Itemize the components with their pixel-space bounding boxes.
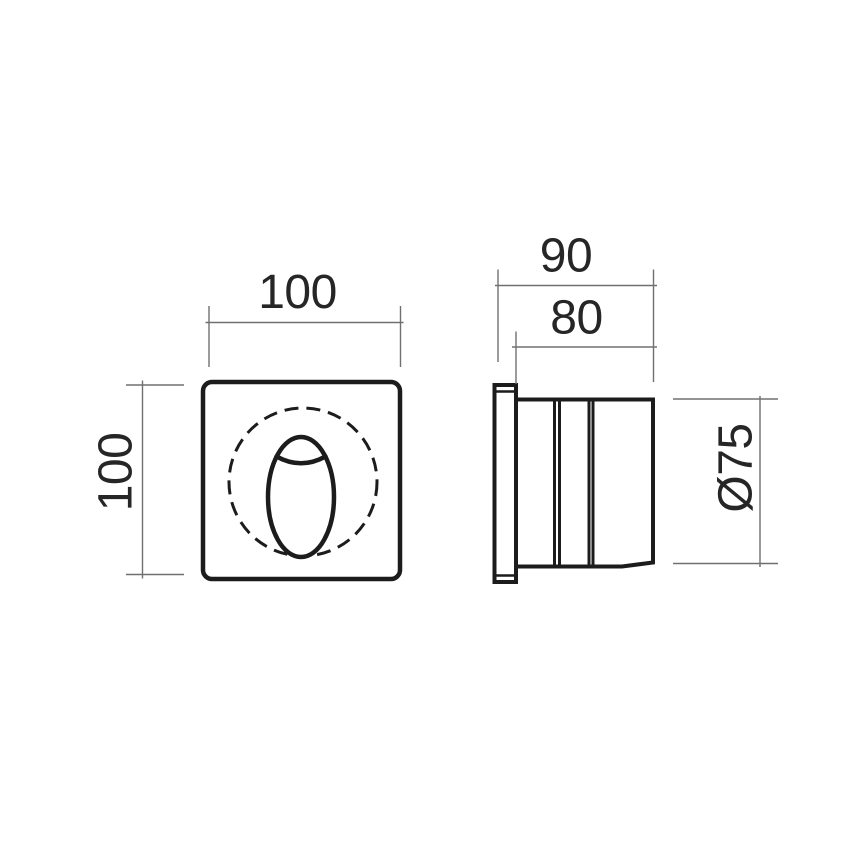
front-height-dimension: 100 (90, 381, 185, 579)
diameter-label: Ø75 (710, 423, 763, 512)
mounting-flange (495, 385, 517, 582)
dimension-drawing: 100 100 90 (0, 0, 868, 868)
front-width-label: 100 (258, 266, 337, 319)
side-view (495, 385, 654, 582)
front-view (203, 382, 400, 579)
body-depth-label: 80 (550, 292, 602, 345)
front-width-dimension: 100 (206, 266, 404, 367)
overall-depth-label: 90 (540, 230, 592, 283)
body-depth-dimension: 80 (512, 292, 657, 385)
recessed-body (516, 400, 653, 567)
drawing-page: 100 100 90 (0, 0, 868, 868)
diameter-dimension: Ø75 (673, 396, 778, 567)
front-height-label: 100 (90, 433, 143, 512)
